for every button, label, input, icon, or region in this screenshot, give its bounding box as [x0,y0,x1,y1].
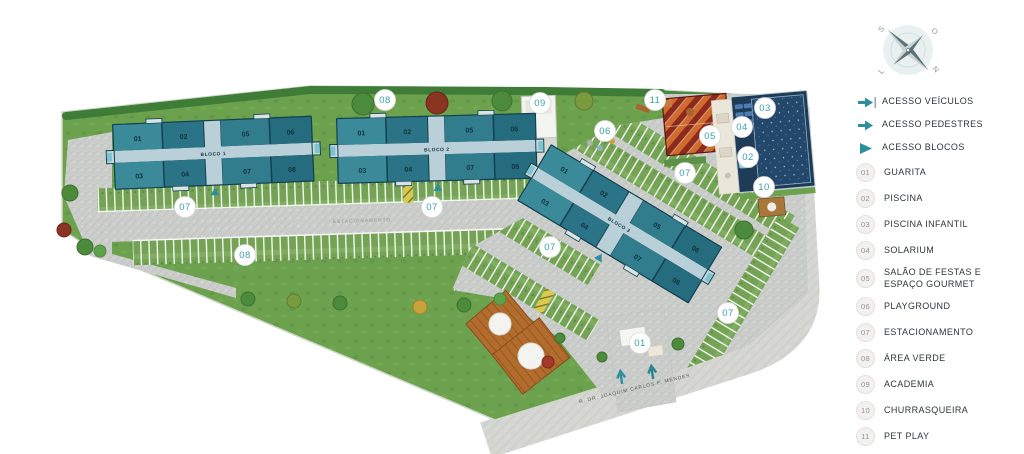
bush-red [542,356,554,368]
svg-text:02: 02 [742,152,754,163]
block-name: BLOCO 1 [200,151,226,158]
bush [457,298,471,312]
svg-text:07: 07 [679,168,691,179]
map-badge-area-verde: 08 [375,90,396,111]
bush [672,338,684,350]
block-access-triangle-icon [856,142,882,155]
map-badge-area-verde: 08 [235,245,256,266]
unit-label: 02 [180,134,188,141]
pedestrian-access-arrow-icon [856,119,882,132]
legend-row-piscina: 02 PISCINA [856,189,1024,208]
tree [352,93,374,115]
unit-label: 04 [181,171,189,178]
bush [77,239,93,255]
map-badge-estacionamento: 07 [675,163,696,184]
legend-number-badge: 11 [856,427,875,446]
unit-label: 07 [243,169,251,176]
legend-row-solarium: 04 SOLARIUM [856,241,1024,260]
legend-number-badge: 02 [856,189,875,208]
tree [492,91,512,111]
legend-label: ESTACIONAMENTO [884,327,1014,339]
compass-rose: S O L N [876,24,941,76]
bush [94,245,106,257]
map-badge-playground: 06 [595,121,616,142]
map-badge-guarita: 01 [630,333,651,354]
svg-text:09: 09 [534,98,546,109]
legend-row-playground: 06 PLAYGROUND [856,297,1024,316]
legend-number-badge: 06 [856,297,875,316]
legend-label: PISCINA INFANTIL [884,219,1014,231]
map-badge-piscina: 02 [738,147,759,168]
bush [241,292,255,306]
unit-label: 05 [242,131,250,138]
map-badge-churrasqueira: 10 [754,177,775,198]
legend-label: PET PLAY [884,431,1014,443]
compass-l: L [877,67,886,76]
unit-label: 07 [466,165,474,172]
legend-row-estacionamento: 07 ESTACIONAMENTO [856,323,1024,342]
legend-number-badge: 05 [856,269,875,288]
tree-red [426,92,448,114]
svg-text:08: 08 [239,250,251,261]
map-badge-estacionamento: 07 [540,237,561,258]
legend-row-pet-play: 11 PET PLAY [856,427,1024,446]
unit-label: 04 [404,167,412,174]
legend-row-churrasqueira: 10 CHURRASQUEIRA [856,401,1024,420]
map-badge-pet-play: 11 [645,90,666,111]
unit-label: 06 [286,129,294,136]
svg-text:03: 03 [759,103,771,114]
block-name: BLOCO 2 [424,147,450,154]
svg-text:04: 04 [736,122,748,133]
legend-row-area-verde: 08 ÁREA VERDE [856,349,1024,368]
legend-label: SOLARIUM [884,245,1014,257]
unit-label: 08 [511,164,519,171]
unit-label: 03 [135,173,143,180]
legend-label: ACADEMIA [884,379,1014,391]
legend-label: SALÃO DE FESTAS E ESPAÇO GOURMET [884,267,1014,290]
legend-label: ACESSO VEÍCULOS [882,96,1012,108]
unit-label: 08 [288,167,296,174]
map-badge-estacionamento: 07 [175,197,196,218]
legend-row-acesso-blocos: ACESSO BLOCOS [856,140,1024,156]
tree-olive [575,92,593,110]
unit-label: 02 [403,129,411,136]
legend-row-guarita: 01 GUARITA [856,163,1024,182]
svg-text:08: 08 [379,95,391,106]
unit-label: 01 [134,136,142,143]
legend-number-badge: 09 [856,375,875,394]
map-badge-estacionamento: 07 [718,303,739,324]
legend-number-badge: 08 [856,349,875,368]
svg-text:07: 07 [544,242,556,253]
legend-row-salao-de-festas: 05 SALÃO DE FESTAS E ESPAÇO GOURMET [856,267,1024,290]
bush [62,185,78,201]
map-badge-academia: 09 [530,93,551,114]
bush [287,294,301,308]
legend-number-badge: 10 [856,401,875,420]
compass-o: O [930,26,941,37]
legend-row-piscina-infantil: 03 PISCINA INFANTIL [856,215,1024,234]
legend-row-acesso-pedestres: ACESSO PEDESTRES [856,117,1024,133]
bush [333,296,347,310]
legend-label: GUARITA [884,167,1014,179]
legend-label: ACESSO BLOCOS [882,142,1012,154]
svg-text:07: 07 [722,308,734,319]
unit-label: 03 [358,168,366,175]
map-badge-estacionamento: 07 [422,197,443,218]
svg-text:07: 07 [426,202,438,213]
bush [494,293,506,305]
compass-n: N [931,64,941,74]
legend-label: CHURRASQUEIRA [884,405,1014,417]
legend-label: PISCINA [884,193,1014,205]
unit-label: 01 [357,130,365,137]
legend-number-badge: 03 [856,215,875,234]
unit-label: 05 [465,127,473,134]
svg-text:06: 06 [599,126,611,137]
svg-text:05: 05 [704,131,716,142]
legend-number-badge: 04 [856,241,875,260]
legend-number-badge: 01 [856,163,875,182]
bush-yellow [413,300,427,314]
unit-label: 06 [510,126,518,133]
map-badge-piscina-infantil: 03 [755,98,776,119]
legend-row-academia: 09 ACADEMIA [856,375,1024,394]
svg-text:07: 07 [179,202,191,213]
vehicle-access-arrow-icon [856,96,882,109]
svg-text:11: 11 [650,95,661,106]
bush [555,333,565,343]
bush [597,352,607,362]
map-badge-salao: 05 [700,126,721,147]
legend-label: PLAYGROUND [884,301,1014,313]
svg-text:10: 10 [758,182,770,193]
map-badge-solarium: 04 [732,117,753,138]
tree [735,221,753,239]
compass-s: S [876,24,886,34]
bush-red [57,223,71,237]
legend: ACESSO VEÍCULOS ACESSO PEDESTRES ACESSO … [856,94,1024,453]
legend-label: ÁREA VERDE [884,353,1014,365]
legend-label: ACESSO PEDESTRES [882,119,1012,131]
site-plan-page: ESTACIONAMENTO [0,0,1024,454]
legend-row-acesso-veiculos: ACESSO VEÍCULOS [856,94,1024,110]
svg-text:01: 01 [634,338,646,349]
legend-number-badge: 07 [856,323,875,342]
